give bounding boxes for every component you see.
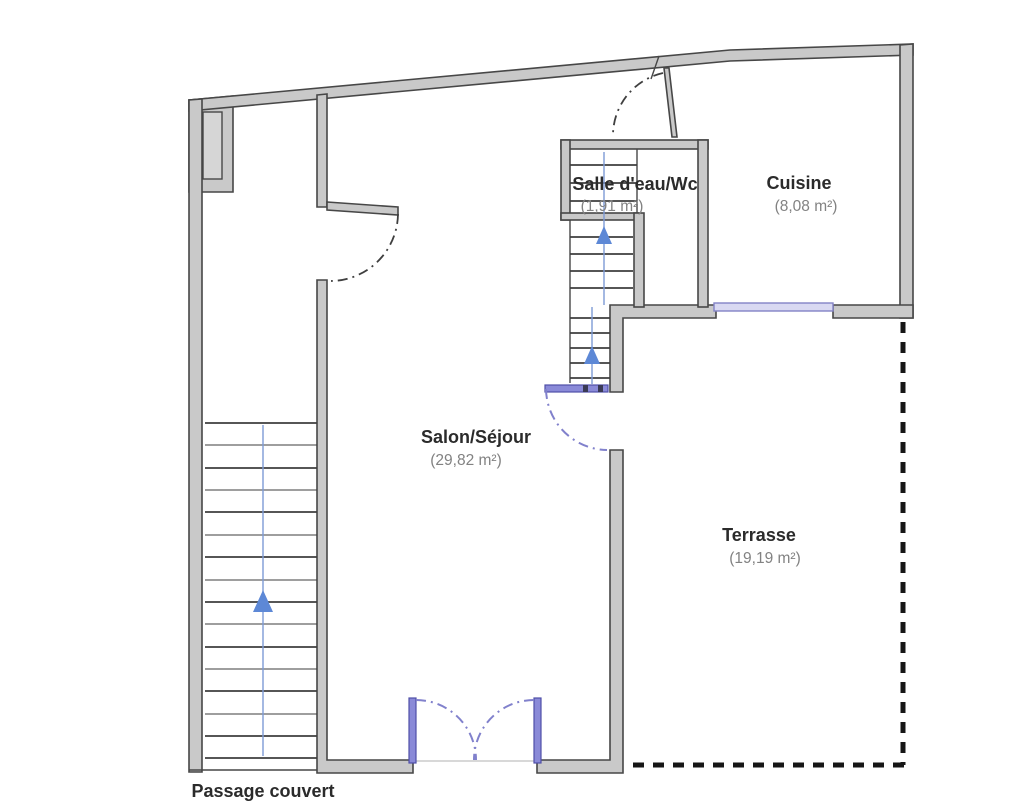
interior-walls xyxy=(317,94,913,773)
kitchen-window xyxy=(714,303,833,311)
floor-plan-canvas: Salle d'eau/Wc (1,91 m²) Cuisine (8,08 m… xyxy=(0,0,1024,812)
bathroom-wall-top xyxy=(561,140,708,149)
stair-door-tick xyxy=(598,385,603,392)
exterior-wall-right xyxy=(900,44,913,318)
salon-passage-door-leaf xyxy=(327,202,398,215)
french-door-right-leaf xyxy=(534,698,541,763)
french-door-right-swing-arc xyxy=(474,700,534,760)
entrance-door-leaf xyxy=(664,68,677,137)
bathroom-divider-wall xyxy=(634,213,644,307)
french-door-left-swing-arc xyxy=(416,700,476,760)
room-area-terrasse: (19,19 m²) xyxy=(729,550,801,567)
salon-passage-wall-lower-and-bottom-left xyxy=(317,280,413,773)
kitchen-bottom-wall-left-and-stair-wall xyxy=(610,305,716,392)
salon-passage-door-swing-arc xyxy=(331,214,398,281)
room-labels: Salle d'eau/Wc (1,91 m²) Cuisine (8,08 m… xyxy=(191,173,837,801)
room-area-salle-deau: (1,91 m²) xyxy=(581,198,644,215)
french-door-left-leaf xyxy=(409,698,416,763)
room-label-salle-deau: Salle d'eau/Wc xyxy=(572,174,697,194)
central-staircase-lower-flight xyxy=(570,318,610,378)
main-staircase xyxy=(189,423,317,770)
room-area-cuisine: (8,08 m²) xyxy=(775,198,838,215)
bathroom-wall-right xyxy=(698,140,708,307)
stair-door-swing-arc xyxy=(546,389,607,450)
exterior-wall-left xyxy=(189,99,202,772)
floor-plan: Salle d'eau/Wc (1,91 m²) Cuisine (8,08 m… xyxy=(0,0,1024,812)
room-label-passage-couvert: Passage couvert xyxy=(191,781,334,801)
stair-door-tick xyxy=(583,385,588,392)
chimney-inset xyxy=(203,112,222,179)
bathroom-wall-left xyxy=(561,140,570,220)
doors xyxy=(327,56,677,763)
kitchen-bottom-wall-right xyxy=(833,305,913,318)
room-label-salon: Salon/Séjour xyxy=(421,427,531,447)
room-label-terrasse: Terrasse xyxy=(722,525,796,545)
salon-passage-wall-upper xyxy=(317,94,327,207)
exterior-walls xyxy=(189,44,913,772)
stair-direction-arrow xyxy=(596,226,612,244)
bottom-wall-right-and-terrasse-wall xyxy=(537,450,623,773)
room-area-salon: (29,82 m²) xyxy=(430,452,502,469)
entrance-door-swing-arc xyxy=(613,73,663,135)
exterior-wall-top xyxy=(189,44,913,111)
room-label-cuisine: Cuisine xyxy=(766,173,831,193)
stair-direction-arrow xyxy=(253,590,273,612)
